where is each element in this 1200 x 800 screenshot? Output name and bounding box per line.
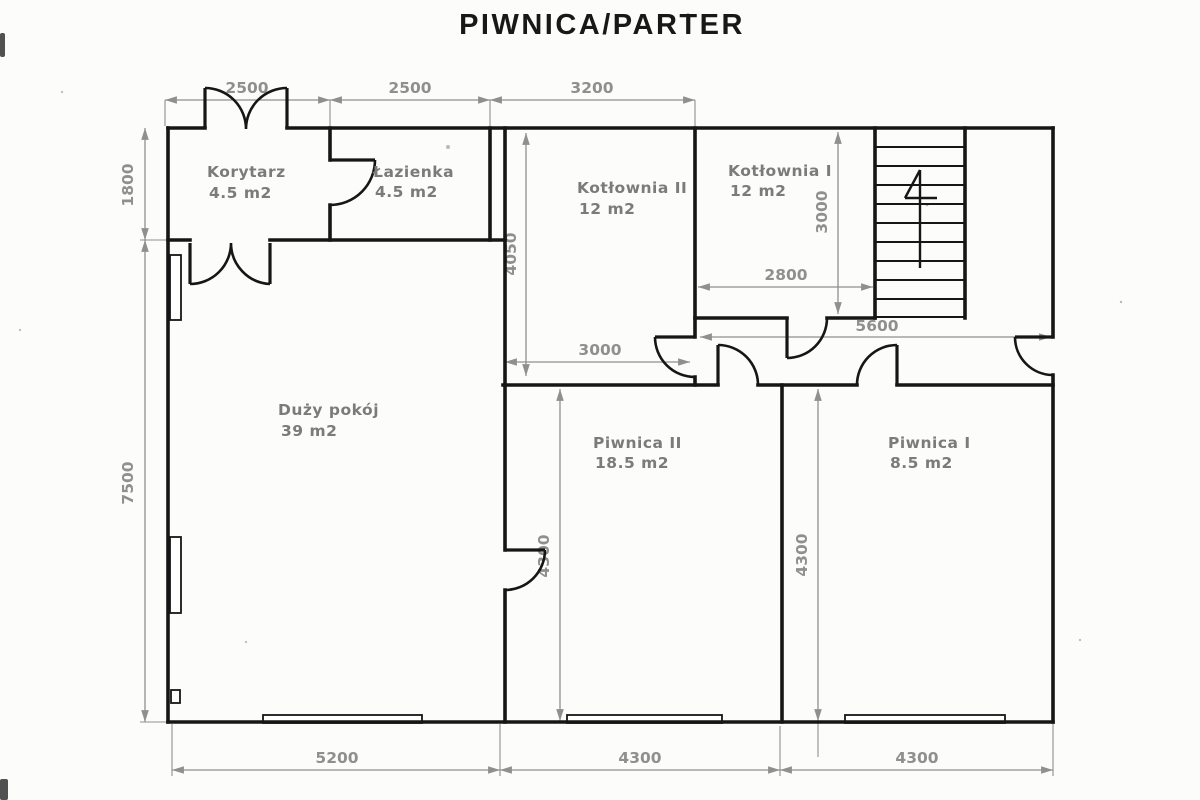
doors [190,88,1053,590]
window-niche [170,537,181,613]
dim-label-bottom-mid: 4300 [618,749,661,767]
door-swing-arc [330,160,375,205]
door-swing-arc [857,345,897,385]
dim-label-bottom-right: 4300 [895,749,938,767]
dimension-labels: 2500 2500 3200 1800 7500 5200 4300 4300 … [119,79,939,767]
dim-label-top-left: 2500 [225,79,268,97]
door-swing-arc [1015,337,1053,375]
room-label-piwnica-1: Piwnica I [888,434,971,452]
dim-label-top-right: 3200 [570,79,613,97]
dim-label-left-upper: 1800 [119,163,137,206]
door-swing-arc [190,243,270,284]
window-niche [171,690,180,703]
room-label-lazienka: Łazienka [372,163,454,181]
dim-label-kotlownia2-width: 3000 [578,341,621,359]
dim-label-bottom-left: 5200 [315,749,358,767]
dim-label-left-lower: 7500 [119,461,137,504]
door-swing-arc [655,337,695,377]
room-area-lazienka: 4.5 m2 [375,183,438,201]
door-swing-arc [718,345,758,385]
room-area-duzy-pokoj: 39 m2 [281,422,337,440]
drawing-title: PIWNICA/PARTER [459,9,745,41]
room-area-piwnica-1: 8.5 m2 [890,454,953,472]
dim-label-kotlownia1-height: 3000 [813,190,831,233]
room-label-kotlownia-1: Kotłownia I [728,162,832,180]
door-swing-arc [787,318,827,358]
room-area-kotlownia-1: 12 m2 [730,182,786,200]
window-niche [170,255,181,320]
room-area-piwnica-2: 18.5 m2 [595,454,669,472]
room-area-korytarz: 4.5 m2 [209,184,272,202]
room-area-kotlownia-2: 12 m2 [579,200,635,218]
dim-label-top-mid: 2500 [388,79,431,97]
dim-label-kotlownia1-width: 2800 [764,266,807,284]
floor-plan-drawing: PIWNICA/PARTER 2500 2500 [0,0,1200,800]
room-label-korytarz: Korytarz [207,163,286,181]
dim-label-piwnica1-height: 4300 [793,533,811,576]
room-label-duzy-pokoj: Duży pokój [278,401,379,419]
room-label-kotlownia-2: Kotłownia II [577,179,687,197]
room-label-piwnica-2: Piwnica II [593,434,682,452]
stairs [875,147,965,317]
